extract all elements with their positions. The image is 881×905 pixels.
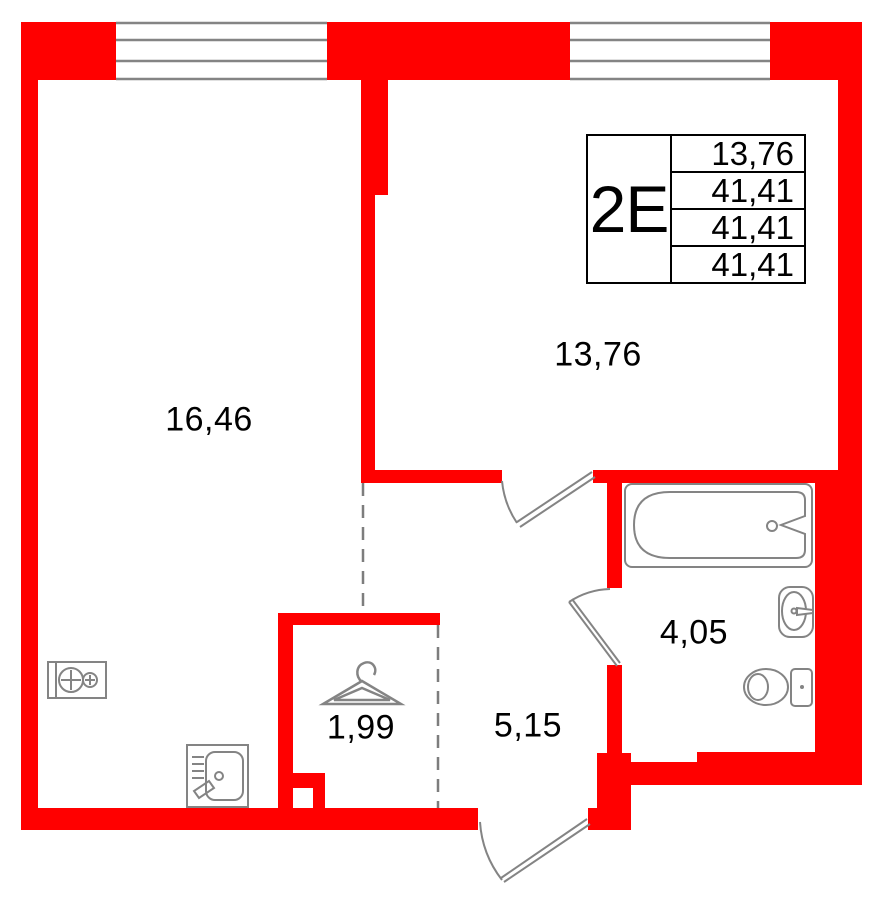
living-room-area-label: 16,46 — [165, 401, 253, 440]
hallway-area-label: 5,15 — [494, 707, 562, 746]
door-bathroom — [569, 589, 620, 666]
washbasin-icon — [779, 587, 813, 637]
unit-type-cell: 2E — [586, 134, 672, 284]
unit-area-row: 41,41 — [670, 245, 806, 284]
toilet-icon — [744, 669, 812, 706]
kitchen-sink-icon — [187, 745, 248, 807]
hanger-icon — [323, 662, 401, 704]
wardrobe-area-label: 1,99 — [327, 709, 395, 748]
floor-plan: 16,46 13,76 4,05 5,15 1,99 2E 13,76 41,4… — [0, 0, 881, 905]
bedroom-area-label: 13,76 — [554, 336, 642, 375]
door-room-hall — [502, 472, 595, 527]
bathtub-icon — [625, 484, 812, 567]
door-entrance — [480, 819, 590, 882]
bathroom-area-label: 4,05 — [660, 614, 728, 653]
window-right — [570, 23, 770, 79]
window-left — [116, 23, 327, 79]
dashed-boundaries — [363, 483, 438, 808]
unit-area-row: 41,41 — [670, 208, 806, 247]
unit-area-row: 13,76 — [670, 134, 806, 173]
stove-icon — [48, 662, 106, 698]
unit-area-row: 41,41 — [670, 171, 806, 210]
